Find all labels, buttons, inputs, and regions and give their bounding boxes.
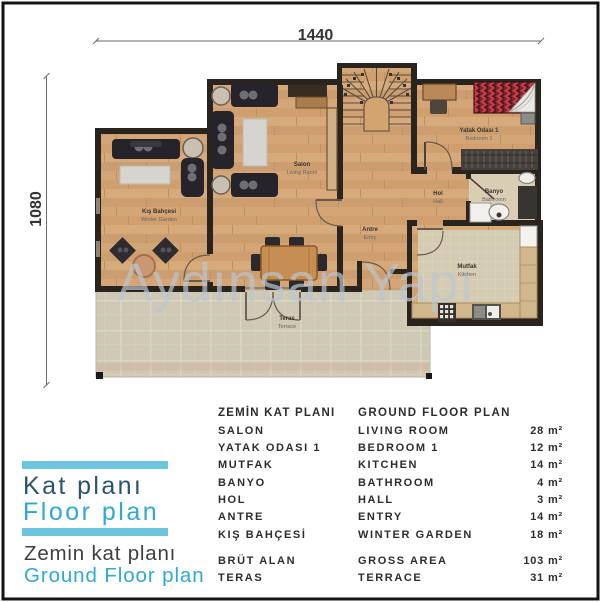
svg-text:Winter Garden: Winter Garden: [141, 217, 177, 223]
svg-text:YATAK ODASI 1: YATAK ODASI 1: [218, 442, 321, 454]
svg-text:Zemin kat planı: Zemin kat planı: [24, 542, 176, 565]
svg-text:Aydınsan Yapı: Aydınsan Yapı: [117, 253, 475, 313]
svg-text:HOL: HOL: [218, 494, 246, 506]
svg-text:Entry: Entry: [364, 235, 377, 241]
svg-text:MUTFAK: MUTFAK: [218, 459, 273, 471]
svg-text:LIVING ROOM: LIVING ROOM: [358, 425, 450, 437]
svg-text:28 m²: 28 m²: [530, 425, 563, 437]
svg-text:KIŞ BAHÇESİ: KIŞ BAHÇESİ: [218, 528, 307, 541]
svg-text:Kitchen: Kitchen: [458, 272, 476, 278]
svg-text:SALON: SALON: [218, 425, 265, 437]
svg-text:GROSS AREA: GROSS AREA: [358, 555, 448, 567]
svg-text:103 m²: 103 m²: [523, 555, 563, 567]
svg-text:Teras: Teras: [279, 316, 295, 322]
svg-text:Banyo: Banyo: [485, 189, 504, 195]
svg-text:ZEMİN KAT PLANI: ZEMİN KAT PLANI: [218, 406, 335, 419]
svg-text:BANYO: BANYO: [218, 477, 266, 489]
svg-text:KITCHEN: KITCHEN: [358, 459, 418, 471]
svg-text:BATHROOM: BATHROOM: [358, 477, 435, 489]
svg-text:Hol: Hol: [433, 191, 443, 197]
svg-text:18 m²: 18 m²: [530, 529, 563, 541]
svg-text:ENTRY: ENTRY: [358, 511, 403, 523]
svg-text:WINTER GARDEN: WINTER GARDEN: [358, 529, 473, 541]
svg-text:14 m²: 14 m²: [530, 459, 563, 471]
svg-text:1080: 1080: [28, 191, 45, 227]
svg-text:31 m²: 31 m²: [530, 572, 563, 584]
svg-text:HALL: HALL: [358, 494, 394, 506]
svg-text:4 m²: 4 m²: [537, 477, 563, 489]
svg-text:Kat planı: Kat planı: [23, 472, 143, 500]
svg-text:Floor plan: Floor plan: [23, 498, 159, 526]
svg-text:Ground Floor plan: Ground Floor plan: [24, 564, 205, 587]
svg-text:ANTRE: ANTRE: [218, 511, 264, 523]
svg-text:14 m²: 14 m²: [530, 511, 563, 523]
svg-text:Bedroom 1: Bedroom 1: [466, 136, 493, 142]
svg-text:1440: 1440: [298, 27, 334, 44]
svg-text:TERRACE: TERRACE: [358, 572, 422, 584]
svg-text:Living Room: Living Room: [287, 170, 318, 176]
svg-text:Yatak Odası 1: Yatak Odası 1: [459, 128, 499, 134]
svg-text:BEDROOM 1: BEDROOM 1: [358, 442, 439, 454]
svg-text:TERAS: TERAS: [218, 572, 263, 584]
svg-text:Salon: Salon: [294, 162, 311, 168]
svg-text:12 m²: 12 m²: [530, 442, 563, 454]
svg-text:Kış Bahçesi: Kış Bahçesi: [142, 209, 176, 215]
svg-text:BRÜT ALAN: BRÜT ALAN: [218, 554, 296, 567]
svg-text:Bathroom: Bathroom: [482, 197, 506, 203]
svg-text:Hall: Hall: [433, 199, 442, 205]
svg-text:Antre: Antre: [362, 227, 378, 233]
svg-text:Mutfak: Mutfak: [457, 264, 477, 270]
svg-text:3 m²: 3 m²: [537, 494, 563, 506]
svg-text:GROUND FLOOR PLAN: GROUND FLOOR PLAN: [358, 407, 511, 419]
svg-text:Terrace: Terrace: [278, 324, 296, 330]
